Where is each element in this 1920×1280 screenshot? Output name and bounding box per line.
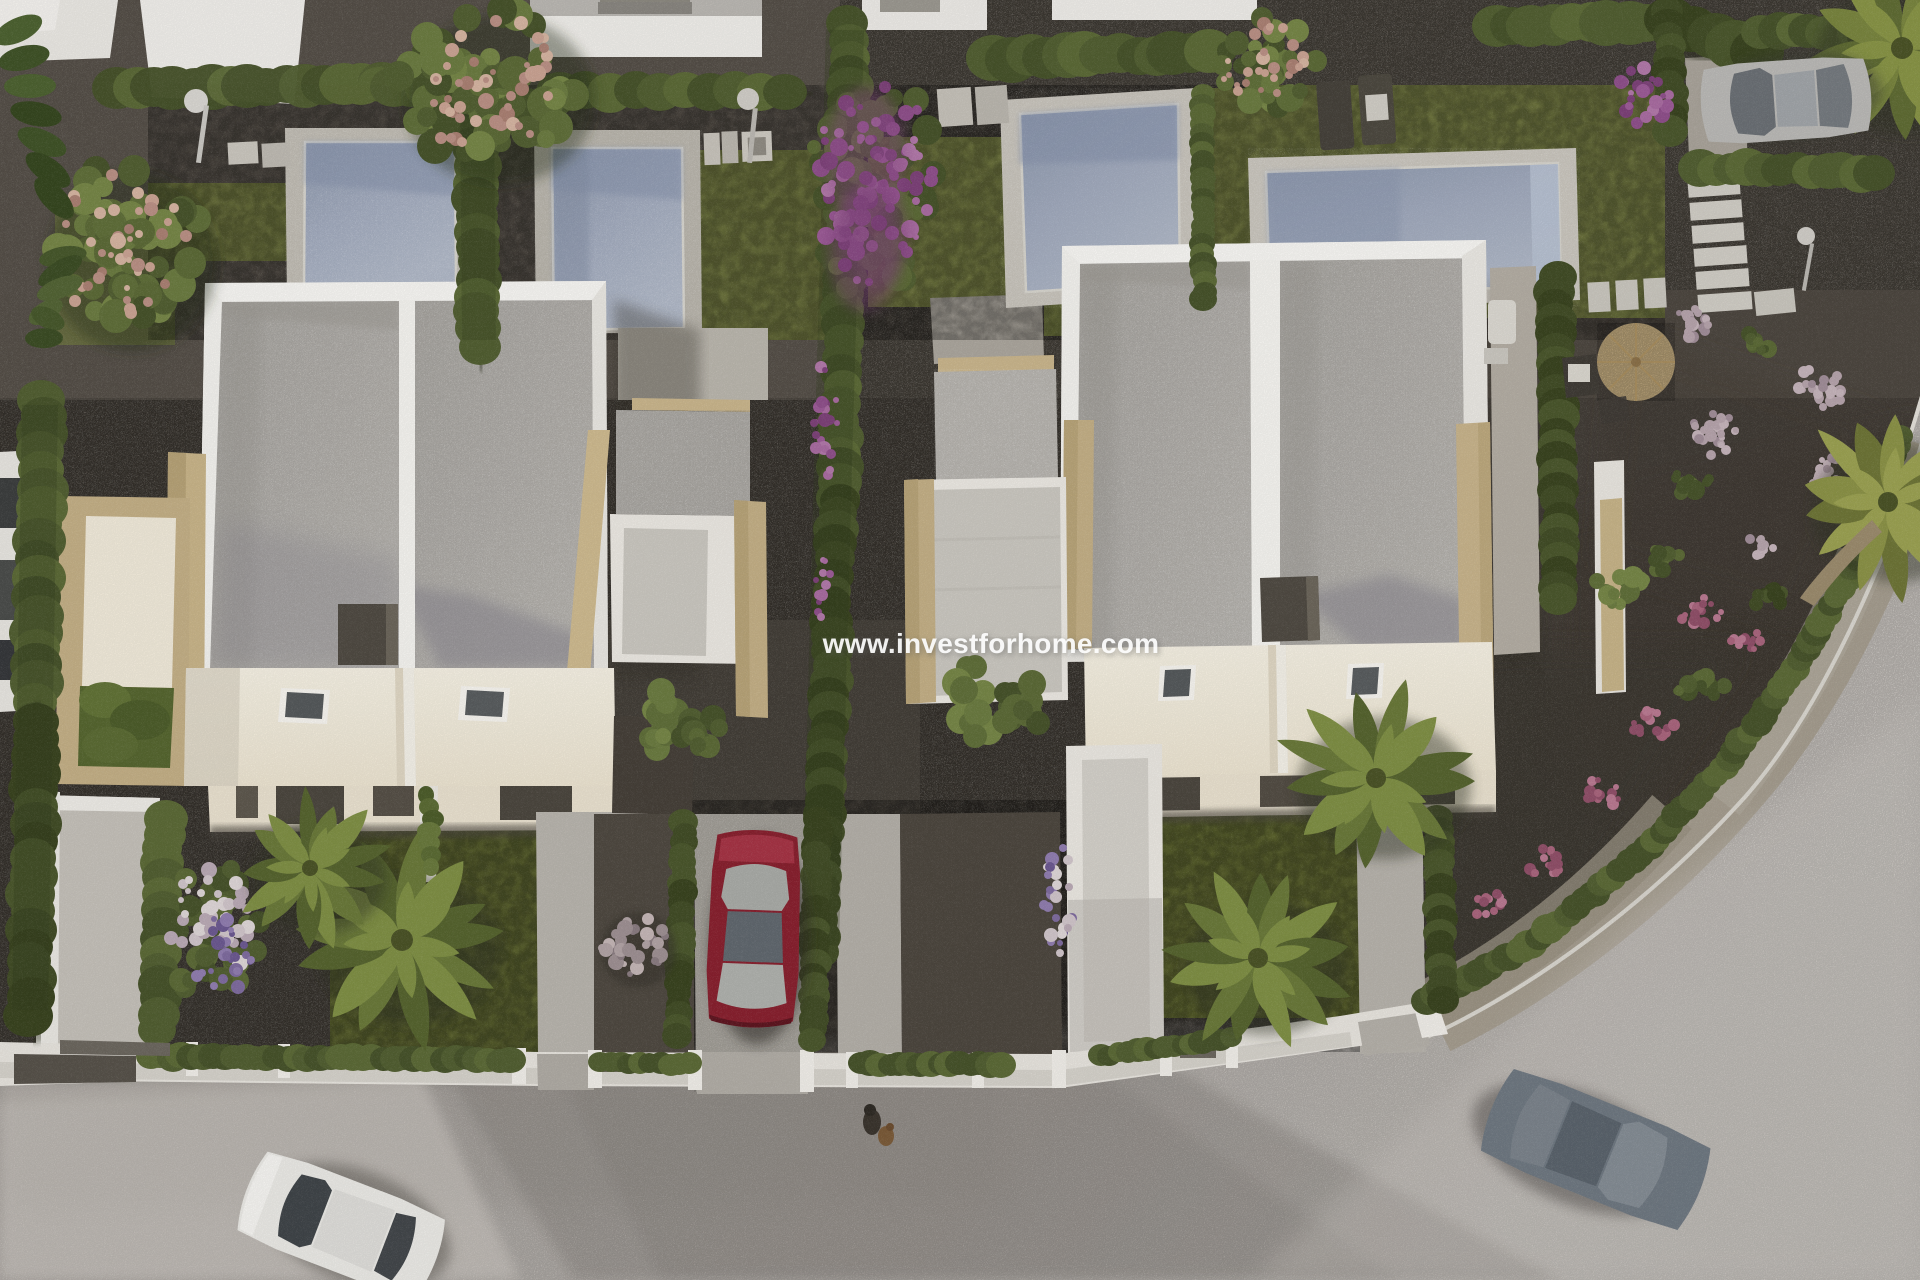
svg-text:www.investforhome.com: www.investforhome.com: [822, 628, 1160, 659]
